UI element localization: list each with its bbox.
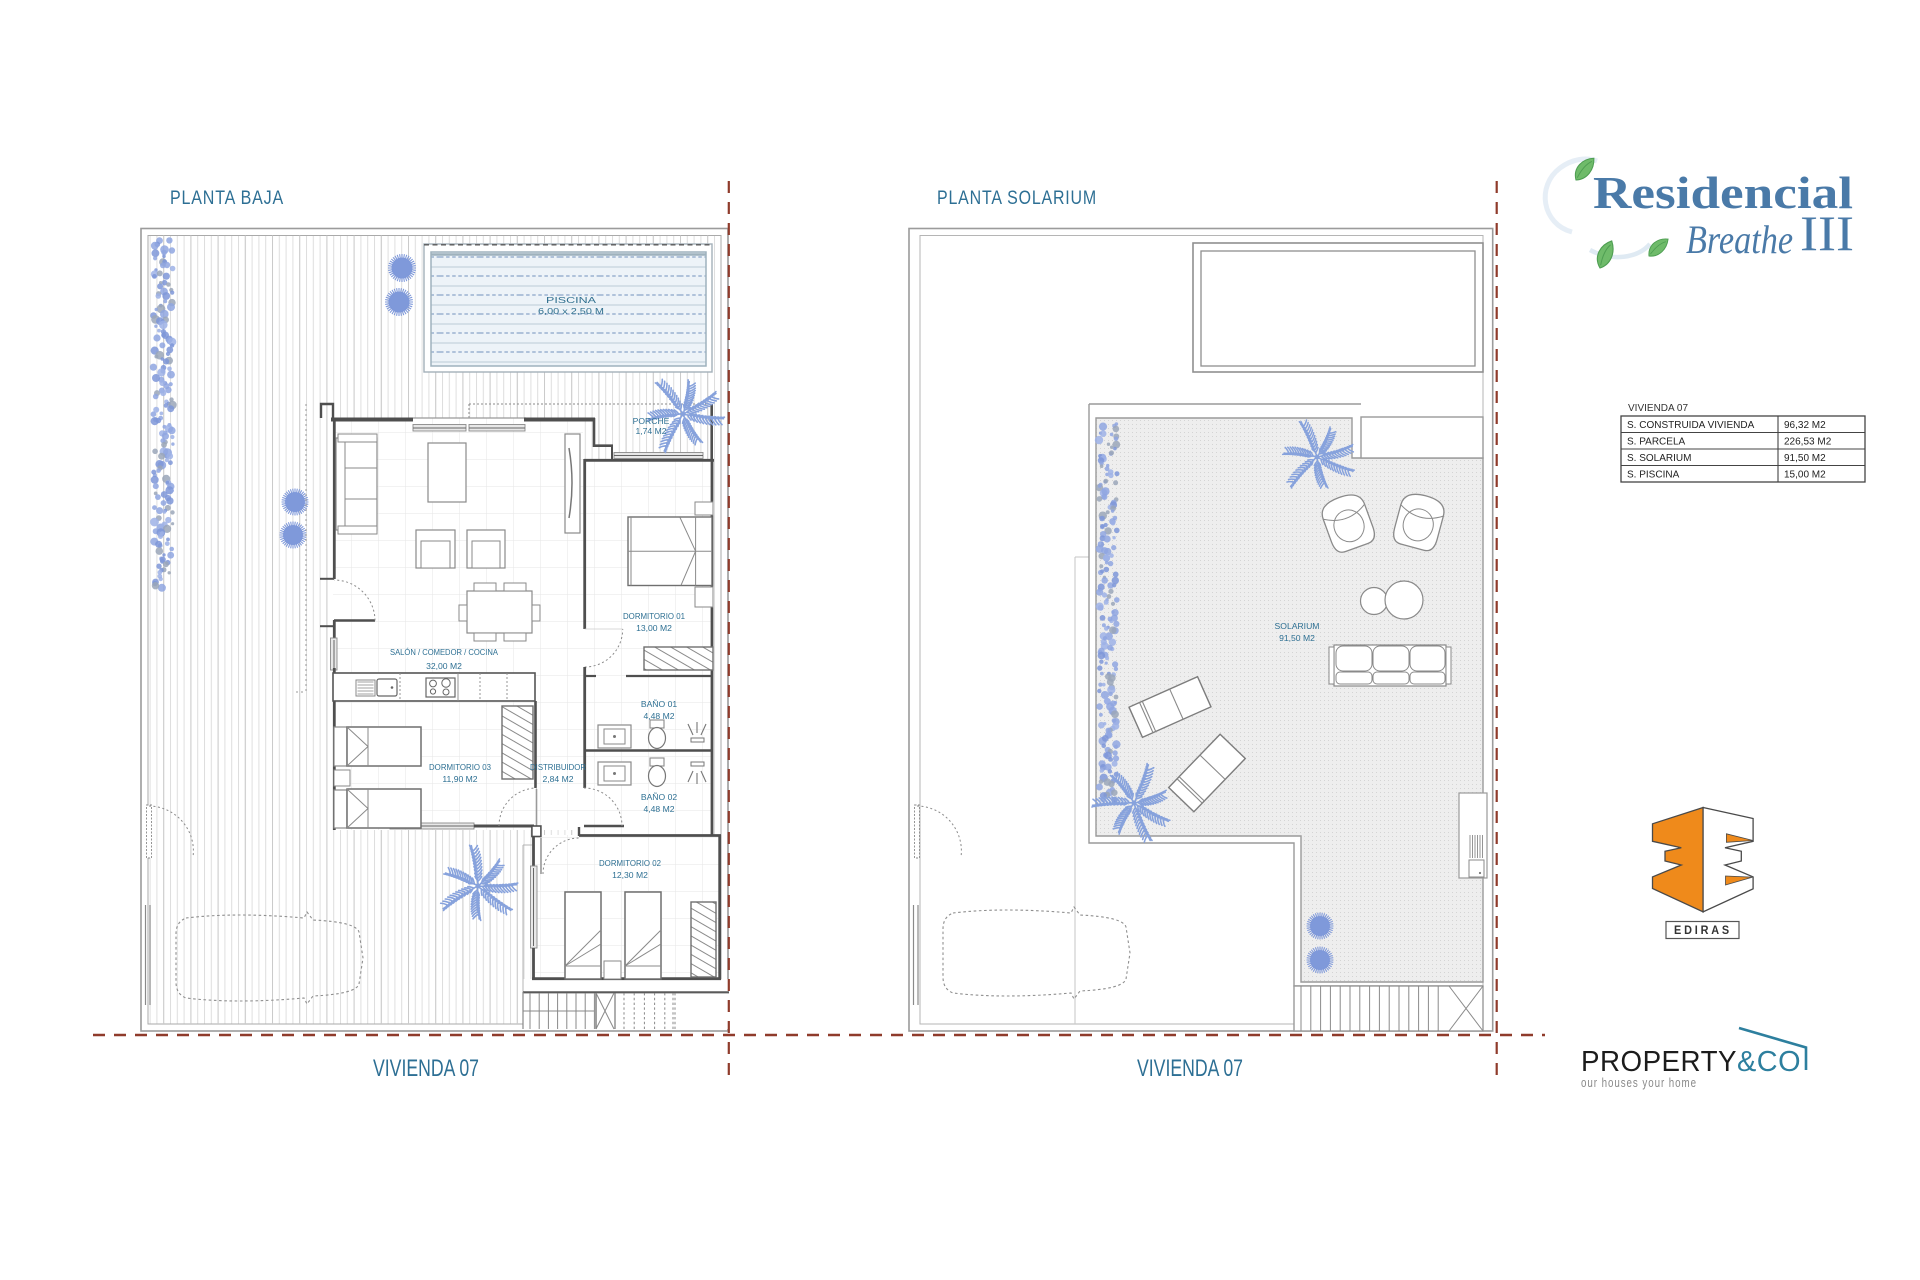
svg-text:PISCINA: PISCINA xyxy=(546,296,597,305)
svg-text:PORCHE: PORCHE xyxy=(633,416,670,426)
svg-text:32,00 M2: 32,00 M2 xyxy=(426,661,462,671)
svg-text:S. CONSTRUIDA VIVIENDA: S. CONSTRUIDA VIVIENDA xyxy=(1627,420,1755,431)
svg-text:11,90 M2: 11,90 M2 xyxy=(442,774,477,784)
svg-text:PLANTA BAJA: PLANTA BAJA xyxy=(170,187,284,209)
svg-text:VIVIENDA 07: VIVIENDA 07 xyxy=(1137,1055,1243,1082)
svg-text:15,00 M2: 15,00 M2 xyxy=(1784,470,1826,481)
svg-text:Breathe: Breathe xyxy=(1686,217,1793,262)
svg-text:EDIRAS: EDIRAS xyxy=(1674,925,1732,937)
svg-text:2,84 M2: 2,84 M2 xyxy=(542,774,573,784)
svg-text:III: III xyxy=(1800,205,1854,261)
svg-text:91,50 M2: 91,50 M2 xyxy=(1279,633,1315,643)
svg-text:DORMITORIO 03: DORMITORIO 03 xyxy=(429,762,491,772)
svg-text:PROPERTY&CO: PROPERTY&CO xyxy=(1581,1046,1801,1078)
svg-text:BAÑO 01: BAÑO 01 xyxy=(641,699,678,709)
svg-text:S. SOLARIUM: S. SOLARIUM xyxy=(1627,453,1691,464)
svg-text:12,30 M2: 12,30 M2 xyxy=(612,870,648,880)
svg-text:BAÑO 02: BAÑO 02 xyxy=(641,792,678,802)
svg-text:VIVIENDA 07: VIVIENDA 07 xyxy=(1628,403,1688,414)
svg-text:our houses your home: our houses your home xyxy=(1581,1076,1697,1090)
svg-text:DORMITORIO 02: DORMITORIO 02 xyxy=(599,858,661,868)
svg-text:13,00 M2: 13,00 M2 xyxy=(636,623,672,633)
svg-text:4,48 M2: 4,48 M2 xyxy=(643,804,674,814)
svg-text:VIVIENDA 07: VIVIENDA 07 xyxy=(373,1055,479,1082)
svg-text:96,32 M2: 96,32 M2 xyxy=(1784,420,1826,431)
svg-text:S. PISCINA: S. PISCINA xyxy=(1627,470,1680,481)
svg-text:S. PARCELA: S. PARCELA xyxy=(1627,437,1685,448)
svg-text:6,00 x 2,50 M: 6,00 x 2,50 M xyxy=(538,307,604,316)
svg-text:SALÓN / COMEDOR / COCINA: SALÓN / COMEDOR / COCINA xyxy=(390,647,498,657)
svg-text:PLANTA SOLARIUM: PLANTA SOLARIUM xyxy=(937,187,1097,209)
svg-text:4,48 M2: 4,48 M2 xyxy=(643,711,674,721)
svg-text:1,74 M2: 1,74 M2 xyxy=(635,426,666,436)
svg-text:226,53 M2: 226,53 M2 xyxy=(1784,437,1832,448)
svg-text:DORMITORIO 01: DORMITORIO 01 xyxy=(623,611,685,621)
svg-text:91,50 M2: 91,50 M2 xyxy=(1784,453,1826,464)
svg-text:SOLARIUM: SOLARIUM xyxy=(1275,621,1320,631)
svg-text:DISTRIBUIDOR: DISTRIBUIDOR xyxy=(530,762,586,772)
